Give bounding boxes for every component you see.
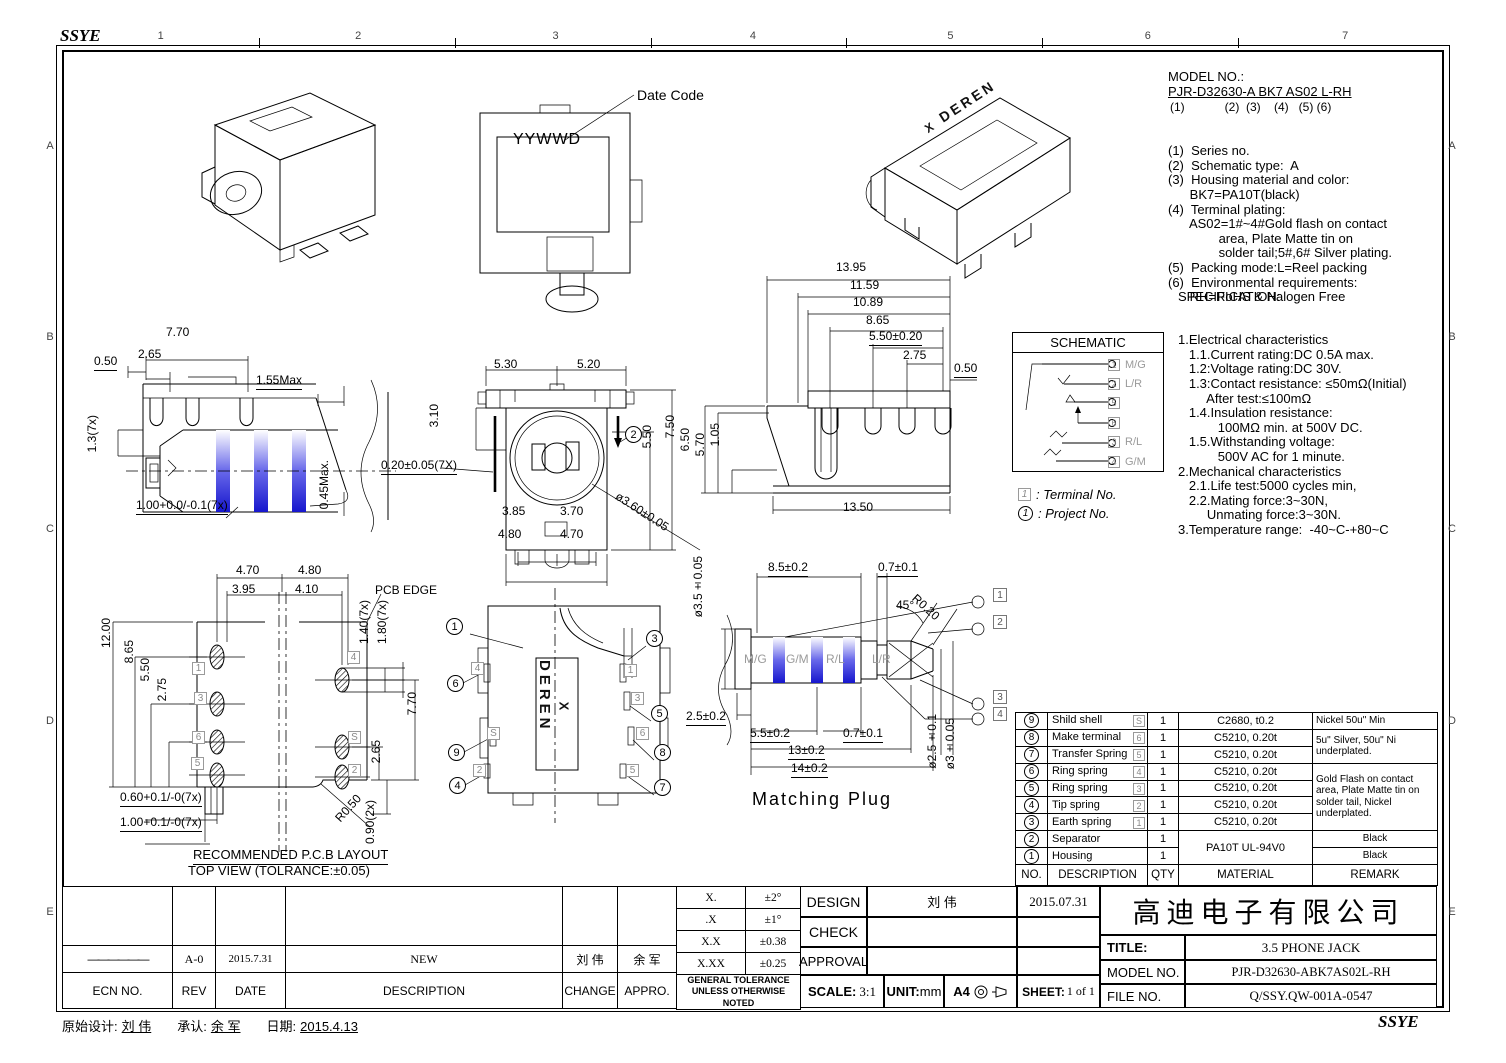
unit-value: mm (920, 984, 942, 999)
file-no-value: Q/SSY.QW-001A-0547 (1185, 984, 1437, 1008)
brand-logo: DEREN (536, 660, 553, 733)
check-label: CHECK (800, 917, 867, 947)
note-line: (3) Housing material and color: (1168, 173, 1392, 188)
footer-item: 日期:2015.4.13 (267, 1016, 358, 1035)
zone-number: 1 (62, 30, 259, 46)
note-line: (5) Packing mode:L=Reel packing (1168, 261, 1392, 276)
zone-letter: B (44, 242, 56, 434)
schematic-row: 2 L/R (1108, 374, 1178, 393)
part-no: 5 (1024, 781, 1039, 796)
dim: 4.70 (560, 528, 583, 541)
dim: 0.7±0.1 (878, 561, 918, 577)
terminal-number-box: 5 (191, 757, 204, 770)
schematic-row: 1 M/G (1108, 355, 1178, 374)
dim: 13.50 (843, 501, 873, 514)
terminal-callout-box: 3 (993, 690, 1007, 704)
brand-x-logo: X (556, 702, 571, 714)
dim: 0.50 (954, 362, 977, 378)
drawing-sheet: SSYE SSYE 1234567 ABCDE ABCDE 原始设计:刘 伟承认… (0, 0, 1506, 1063)
dim: 4.80 (298, 564, 321, 577)
dim: 2.75 (903, 349, 926, 362)
part-desc: Make terminal (1052, 731, 1121, 743)
dim: 3.95 (232, 583, 255, 596)
footer-signatures: 原始设计:刘 伟承认:余 军日期:2015.4.13 (62, 1016, 358, 1035)
dim: 0.7±0.1 (843, 727, 883, 743)
model-note-title: MODEL NO.: (1168, 69, 1244, 84)
dim: 14±0.2 (791, 762, 828, 778)
dim: 1.00+0.0/-0.1(7x) (136, 499, 228, 515)
zone-letter: B (1446, 242, 1458, 434)
dim: 5.70 (694, 433, 707, 456)
table-row: GENERAL TOLERANCEUNLESS OTHERWISE NOTED (677, 975, 801, 1010)
zone-number: 6 (1049, 30, 1246, 46)
dim: 6.50 (679, 428, 692, 451)
dim: 3.85 (502, 505, 525, 518)
zone-letter: E (44, 816, 56, 1008)
dim: 1.40(7x) (358, 600, 371, 644)
terminal-number-box: 1 (1133, 817, 1145, 829)
drawing-title: 3.5 PHONE JACK (1185, 935, 1437, 960)
part-no: 6 (1024, 764, 1039, 779)
dim: 4.10 (295, 583, 318, 596)
note-line: AS02=1#~4#Gold flash on contact (1168, 217, 1392, 232)
note-line: (4) Terminal plating: (1168, 203, 1392, 218)
table-row: X.XX±0.25 (677, 953, 801, 975)
dim: ø3±0.05 (944, 718, 957, 769)
dim: 2.75 (156, 678, 169, 701)
dim: 5.5±0.2 (750, 727, 790, 743)
approval-date (1017, 947, 1100, 975)
table-row: 9 Shild shellS 1 C2680, t0.2 Nickel 50u"… (1016, 713, 1438, 730)
spec-line: 2.1.Life test:5000 cycles min, (1178, 479, 1407, 494)
zone-row-letters-left: ABCDE (44, 50, 56, 1008)
schematic-terminals: 1 M/G 2 L/R 5 6 3 R/L 4 G/M (1108, 355, 1178, 471)
model-note-lines: (1) Series no.(2) Schematic type: A(3) H… (1168, 115, 1392, 305)
spec-line: Unmating force:3~30N. (1178, 508, 1407, 523)
part-no: 3 (1024, 815, 1039, 830)
note-line: BK7=PA10T(black) (1168, 188, 1392, 203)
dim: 2.65 (138, 348, 161, 361)
bottom-view (428, 568, 718, 858)
balloon-callout: 1 (446, 618, 463, 635)
design-label: DESIGN (800, 886, 867, 917)
dim: 2.65 (370, 740, 383, 763)
terminal-number-box: S (487, 727, 500, 740)
terminal-number-box: 1 (624, 664, 637, 677)
schematic-row: 5 (1108, 394, 1178, 413)
terminal-number-box: 4 (347, 651, 360, 664)
terminal-signal: L/R (1125, 378, 1142, 390)
zone-number: 2 (259, 30, 456, 46)
dim: 13±0.2 (788, 744, 825, 760)
project-balloon-sample: 1 (1018, 506, 1033, 521)
balloon-callout: 5 (651, 705, 668, 722)
dim: 7.70 (406, 692, 419, 715)
part-no: 8 (1024, 730, 1039, 745)
paper-cell: A4 (944, 975, 1017, 1008)
note-line: area, Plate Matte tin on (1168, 232, 1392, 247)
terminal-number-box: 5 (1108, 397, 1120, 409)
model-note-code: PJR-D32630-A BK7 AS02 L-RH (1168, 84, 1352, 99)
design-date: 2015.07.31 (1017, 886, 1100, 917)
dim: 0.50 (94, 355, 117, 371)
dim: 1.3(7x) (86, 415, 99, 452)
table-row: 8 Make terminal6 1 C5210, 0.20t 5u" Silv… (1016, 729, 1438, 746)
note-line: (1) Series no. (1168, 144, 1392, 159)
dim: 1.80(7x) (376, 600, 389, 644)
dim: 7.50 (664, 415, 677, 438)
part-no: 2 (1024, 832, 1039, 847)
dim: 11.59 (850, 279, 879, 292)
scale-label: SCALE: (808, 984, 856, 999)
part-no: 1 (1024, 849, 1039, 864)
plug-segment-label: G/M (786, 653, 809, 666)
terminal-signal: R/L (1125, 436, 1142, 448)
terminal-callout-box: 4 (993, 707, 1007, 721)
terminal-signal: M/G (1125, 359, 1146, 371)
balloon-callout: 3 (646, 630, 663, 647)
sheet-value: 1 of 1 (1067, 984, 1095, 999)
zone-letter: C (44, 433, 56, 625)
approval-label: APPROVAL (800, 947, 867, 975)
dim: ø2.5±0.1 (926, 714, 939, 769)
part-no: 4 (1024, 798, 1039, 813)
spec-line: 1.Electrical characteristics (1178, 333, 1407, 348)
footer-item: 承认:余 军 (177, 1016, 240, 1035)
spec-line: 500V AC for 1 minute. (1178, 450, 1407, 465)
terminal-number-box: 6 (1108, 417, 1120, 429)
legend-project-text: : Project No. (1038, 506, 1110, 521)
schematic-row: 6 (1108, 413, 1178, 432)
date-code-value: YYWWD (513, 132, 581, 149)
legend-terminal: 1 : Terminal No. (1018, 487, 1116, 502)
zone-number: 4 (654, 30, 851, 46)
terminal-number-box: 3 (194, 692, 207, 705)
table-row: X.±2° (677, 887, 801, 909)
dim: 8.65 (123, 640, 136, 663)
dim: 12.00 (100, 618, 113, 648)
balloon-callout: 9 (448, 744, 465, 761)
table-row (63, 887, 677, 946)
dim: 3.10 (428, 404, 441, 427)
dim: 1.55Max (256, 374, 302, 390)
zone-letter: D (44, 625, 56, 817)
terminal-number-box: S (1133, 715, 1145, 727)
side-view-right (685, 258, 1015, 533)
pcb-note-2: TOP VIEW (TOLRANCE:±0.05) (188, 864, 370, 878)
dim: 0.45Max. (318, 460, 331, 509)
iso-view-left (140, 75, 390, 320)
part-desc: Tip spring (1052, 799, 1100, 811)
terminal-number-box: 4 (1108, 456, 1120, 468)
terminal-number-box: 1 (192, 662, 205, 675)
terminal-number-box: 5 (626, 764, 639, 777)
part-desc: Transfer Spring (1052, 748, 1127, 760)
spec-line: 100MΩ min. at 500V DC. (1178, 421, 1407, 436)
dim: 8.5±0.2 (768, 561, 808, 577)
balloon-callout: 7 (654, 779, 671, 796)
part-desc: Ring spring (1052, 765, 1108, 777)
legend-project: 1 : Project No. (1018, 506, 1110, 521)
spec-line: 1.4.Insulation resistance: (1178, 406, 1407, 421)
dim: 4.70 (236, 564, 259, 577)
dim: 0.90(2x) (364, 800, 377, 844)
company-name: 高迪电子有限公司 (1100, 886, 1437, 935)
dim: 8.65 (866, 314, 889, 327)
check-name (867, 917, 1017, 947)
plug-segment-label: M/G (744, 653, 767, 666)
legend-terminal-text: : Terminal No. (1036, 487, 1116, 502)
tolerance-table: X.±2° .X±1° X.X±0.38 X.XX±0.25 GENERAL T… (676, 886, 801, 1010)
dim: 5.50 (139, 658, 152, 681)
dim: 0.60+0.1/-0(7x) (120, 791, 202, 807)
logo-ssye-bottom: SSYE (1378, 1012, 1419, 1032)
balloon-callout: 4 (449, 777, 466, 794)
date-code-label: Date Code (637, 88, 704, 103)
matching-plug-title: Matching Plug (752, 790, 892, 809)
part-desc: Earth spring (1052, 816, 1111, 828)
parts-table: 9 Shild shellS 1 C2680, t0.2 Nickel 50u"… (1015, 712, 1438, 886)
schematic-row: 3 R/L (1108, 433, 1178, 452)
check-date (1017, 917, 1100, 947)
part-desc: Ring spring (1052, 782, 1108, 794)
spec-line: After test:≤100mΩ (1178, 392, 1407, 407)
dim: 5.20 (577, 358, 600, 371)
table-row: 6 Ring spring4 1 C5210, 0.20t Gold Flash… (1016, 763, 1438, 780)
plug-segment-label: R/L (826, 653, 845, 666)
terminal-callout-box: 1 (993, 588, 1007, 602)
tolerance-note-2: UNLESS OTHERWISE NOTED (677, 986, 800, 1009)
terminal-number-box: S (348, 731, 361, 744)
scale-value: 3:1 (859, 984, 876, 1000)
model-note-index: (1) (2) (3) (4) (5) (6) (1170, 100, 1331, 114)
unit-cell: UNIT: mm (884, 975, 944, 1008)
note-line: (2) Schematic type: A (1168, 159, 1392, 174)
dim: 1.00+0.1/-0(7x) (120, 816, 202, 832)
terminal-number-box: 6 (1133, 732, 1145, 744)
dim: 10.89 (853, 296, 883, 309)
table-row: 2 Separator 1 PA10T UL-94V0 Black (1016, 831, 1438, 848)
terminal-callout-box: 2 (993, 615, 1007, 629)
zone-number: 3 (457, 30, 654, 46)
spec-line: 1.2:Voltage rating:DC 30V. (1178, 362, 1407, 377)
table-row: X.X±0.38 (677, 931, 801, 953)
terminal-signal: G/M (1125, 456, 1146, 468)
terminal-number-box: 4 (471, 662, 484, 675)
dim: 1.05 (709, 423, 722, 446)
dim: 3.70 (560, 505, 583, 518)
scale-cell: SCALE: 3:1 (800, 975, 884, 1008)
terminal-number-box: 3 (1108, 436, 1120, 448)
front-view-top (455, 85, 720, 320)
revision-table: —————— A-0 2015.7.31 NEW 刘 伟 余 军 ECN NO.… (62, 886, 677, 1009)
sheet-label: SHEET: (1022, 985, 1065, 999)
terminal-box-sample: 1 (1018, 488, 1031, 501)
table-header-row: NO. DESCRIPTION QTY MATERIAL REMARK (1016, 865, 1438, 886)
zone-letter: A (44, 50, 56, 242)
dim: 0.20±0.05(7X) (381, 459, 457, 475)
dim: 5.50±0.20 (869, 330, 922, 346)
part-no: 9 (1024, 713, 1039, 728)
terminal-number-box: 2 (473, 764, 486, 777)
spec-line: 1.1.Current rating:DC 0.5A max. (1178, 348, 1407, 363)
tolerance-note-1: GENERAL TOLERANCE (677, 975, 800, 986)
model-no-label: MODEL NO. (1100, 960, 1185, 984)
terminal-number-box: 6 (636, 727, 649, 740)
spec-line: 3.Temperature range: -40~C-+80~C (1178, 523, 1407, 538)
spec-line: 1.5.Withstanding voltage: (1178, 435, 1407, 450)
balloon-callout: 6 (447, 675, 464, 692)
terminal-number-box: 3 (1133, 783, 1145, 795)
zone-letter: C (1446, 433, 1458, 625)
balloon-callout: 8 (654, 744, 671, 761)
dim: 13.95 (836, 261, 866, 274)
spec-lines: 1.Electrical characteristics 1.1.Current… (1178, 304, 1407, 538)
dim: 5.50 (641, 425, 654, 448)
spec-line: 2.Mechanical characteristics (1178, 465, 1407, 480)
spec-line: 1.3:Contact resistance: ≤50mΩ(Initial) (1178, 377, 1407, 392)
model-no-value: PJR-D32630-ABK7AS02L-RH (1185, 960, 1437, 984)
projection-symbol-icon (974, 985, 1008, 999)
dim: 5.30 (494, 358, 517, 371)
terminal-number-box: 3 (631, 692, 644, 705)
terminal-number-box: 2 (348, 764, 361, 777)
footer-item: 原始设计:刘 伟 (62, 1016, 151, 1035)
pcb-layout-view (85, 552, 450, 892)
title-label: TITLE: (1100, 935, 1185, 960)
zone-number: 7 (1247, 30, 1444, 46)
terminal-number-box: 2 (1108, 378, 1120, 390)
part-desc: Shild shell (1052, 714, 1102, 726)
part-no: 7 (1024, 747, 1039, 762)
zone-column-numbers: 1234567 (62, 30, 1444, 46)
dim: 7.70 (166, 326, 189, 339)
file-no-label: FILE NO. (1100, 984, 1185, 1008)
terminal-number-box: 1 (1108, 359, 1120, 371)
plug-segment-label: L/R (872, 653, 891, 666)
table-header-row: ECN NO. REV DATE DESCRIPTION CHANGE APPR… (63, 973, 677, 1009)
approval-name (867, 947, 1017, 975)
note-line: solder tail;5#,6# Silver plating. (1168, 246, 1392, 261)
table-row: —————— A-0 2015.7.31 NEW 刘 伟 余 军 (63, 946, 677, 973)
dim: 4.80 (498, 528, 521, 541)
paper-size: A4 (953, 984, 970, 999)
unit-label: UNIT: (887, 984, 920, 999)
table-row: .X±1° (677, 909, 801, 931)
dim: 2.5±0.2 (686, 710, 726, 726)
balloon-callout: 2 (625, 426, 642, 443)
sheet-cell: SHEET: 1 of 1 (1017, 975, 1100, 1008)
terminal-number-box: 5 (1133, 749, 1145, 761)
zone-row-letters-right: ABCDE (1446, 50, 1458, 1008)
zone-number: 5 (852, 30, 1049, 46)
zone-letter: E (1446, 816, 1458, 1008)
spec-title: SPECIFICATION: (1178, 289, 1280, 304)
schematic-row: 4 G/M (1108, 452, 1178, 471)
terminal-number-box: 4 (1133, 766, 1145, 778)
spec-line: 2.2.Mating force:3~30N, (1178, 494, 1407, 509)
terminal-number-box: 6 (192, 731, 205, 744)
dim: ø3.5±0.05 (692, 556, 705, 617)
design-name: 刘 伟 (867, 886, 1017, 917)
terminal-number-box: 2 (1133, 800, 1145, 812)
zone-letter: D (1446, 625, 1458, 817)
zone-letter: A (1446, 50, 1458, 242)
note-line: (6) Environmental requirements: (1168, 276, 1392, 291)
